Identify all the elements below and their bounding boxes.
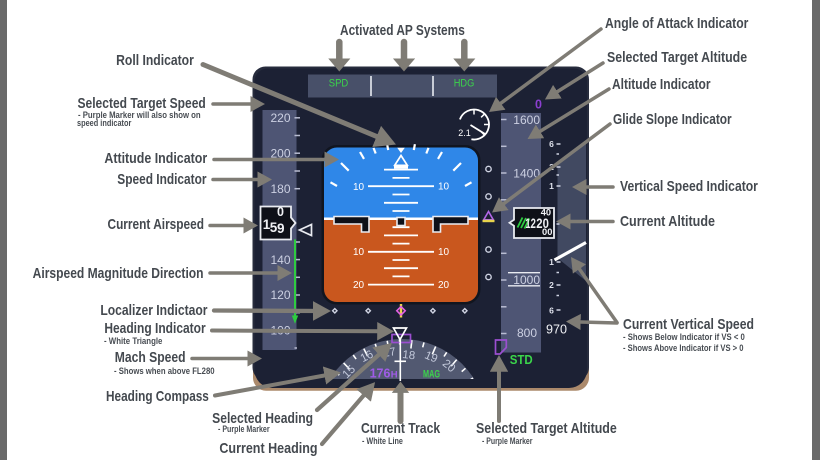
- svg-text:STD: STD: [510, 352, 533, 367]
- svg-text:10: 10: [353, 182, 365, 193]
- svg-text:20: 20: [438, 280, 450, 291]
- svg-text:2: 2: [549, 280, 554, 290]
- svg-text:970: 970: [546, 323, 567, 337]
- svg-text:1: 1: [549, 257, 554, 267]
- svg-text:00: 00: [542, 227, 552, 238]
- svg-text:9: 9: [277, 221, 285, 236]
- svg-text:18: 18: [402, 349, 416, 362]
- svg-text:10: 10: [438, 182, 450, 193]
- svg-text:10: 10: [438, 247, 450, 258]
- svg-text:220: 220: [270, 111, 290, 125]
- svg-text:H: H: [391, 370, 398, 381]
- svg-text:120: 120: [270, 288, 290, 302]
- svg-text:40: 40: [541, 208, 551, 219]
- svg-text:SPD: SPD: [329, 78, 349, 90]
- svg-text:MAG: MAG: [423, 369, 440, 381]
- svg-text:0: 0: [277, 205, 284, 219]
- svg-text:6: 6: [549, 306, 554, 316]
- svg-text:180: 180: [270, 182, 290, 196]
- svg-text:176: 176: [370, 366, 391, 381]
- svg-text:1: 1: [549, 181, 554, 191]
- svg-text:HDG: HDG: [454, 78, 475, 90]
- svg-text:1000: 1000: [513, 273, 540, 287]
- svg-text:6: 6: [549, 139, 554, 149]
- svg-text:20: 20: [353, 280, 365, 291]
- svg-text:2.1: 2.1: [458, 128, 471, 138]
- svg-text:1600: 1600: [513, 113, 540, 127]
- svg-text:12: 12: [525, 215, 536, 231]
- svg-text:0: 0: [535, 98, 542, 112]
- svg-text:140: 140: [270, 253, 290, 267]
- svg-text:10: 10: [353, 247, 365, 258]
- svg-text:800: 800: [517, 326, 537, 340]
